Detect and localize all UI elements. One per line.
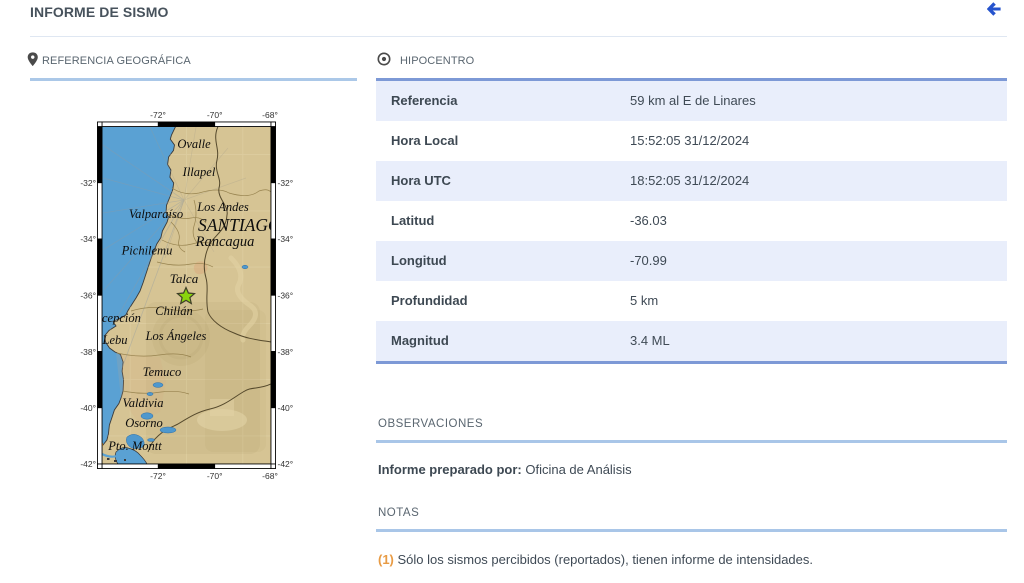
svg-text:-38°: -38° — [80, 347, 96, 357]
svg-text:Illapel: Illapel — [182, 165, 216, 179]
svg-text:Concepción: Concepción — [81, 311, 141, 325]
svg-text:-72°: -72° — [150, 110, 166, 120]
svg-text:Temuco: Temuco — [143, 365, 181, 379]
svg-text:Los Ángeles: Los Ángeles — [145, 329, 207, 343]
svg-text:-40°: -40° — [80, 403, 96, 413]
svg-text:-36°: -36° — [80, 291, 96, 301]
svg-text:-34°: -34° — [80, 234, 96, 244]
svg-text:Los Andes: Los Andes — [196, 200, 249, 214]
svg-text:Lebu: Lebu — [102, 333, 128, 347]
svg-text:-40°: -40° — [278, 403, 294, 413]
svg-text:Pto. Montt: Pto. Montt — [107, 439, 162, 453]
svg-text:-70°: -70° — [207, 471, 223, 481]
svg-text:Valdivia: Valdivia — [123, 396, 164, 410]
svg-text:-72°: -72° — [150, 471, 166, 481]
svg-text:-68°: -68° — [262, 110, 278, 120]
svg-text:-68°: -68° — [262, 471, 278, 481]
svg-text:Rancagua: Rancagua — [195, 234, 255, 250]
svg-text:-36°: -36° — [278, 291, 294, 301]
svg-text:-42°: -42° — [80, 459, 96, 469]
svg-text:Ovalle: Ovalle — [177, 137, 211, 151]
svg-text:SANTIAGO: SANTIAGO — [198, 215, 281, 235]
svg-text:-32°: -32° — [80, 178, 96, 188]
svg-text:Talca: Talca — [170, 271, 199, 286]
svg-text:Valparaíso: Valparaíso — [129, 207, 183, 221]
svg-text:-34°: -34° — [278, 234, 294, 244]
svg-text:Osorno: Osorno — [125, 416, 163, 430]
svg-text:-32°: -32° — [278, 178, 294, 188]
svg-text:-38°: -38° — [278, 347, 294, 357]
svg-text:Pichilemu: Pichilemu — [121, 244, 173, 258]
svg-text:-42°: -42° — [278, 459, 294, 469]
svg-text:Chillán: Chillán — [155, 304, 193, 318]
svg-text:-70°: -70° — [207, 110, 223, 120]
